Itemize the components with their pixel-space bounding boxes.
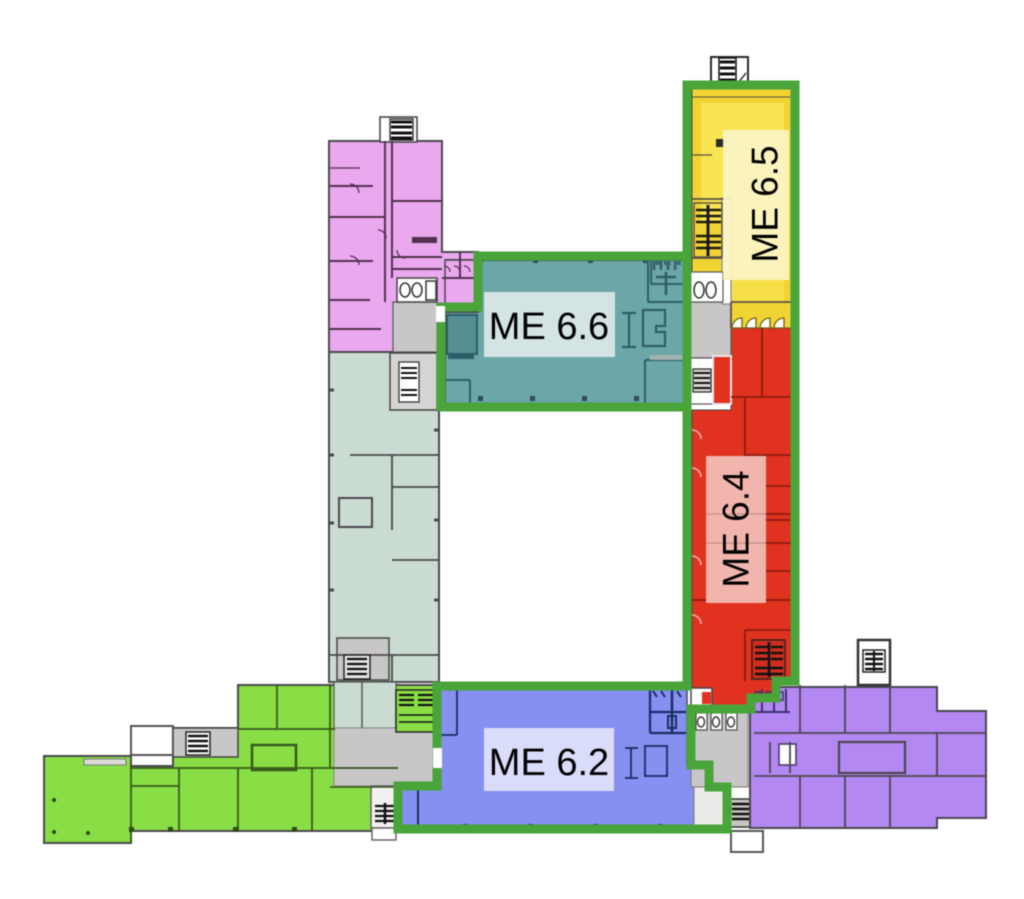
svg-text:ME 6.5: ME 6.5 (745, 145, 786, 262)
svg-text:ME 6.4: ME 6.4 (716, 470, 757, 587)
svg-text:ME 6.6: ME 6.6 (489, 306, 609, 348)
svg-text:ME 6.2: ME 6.2 (489, 742, 609, 784)
